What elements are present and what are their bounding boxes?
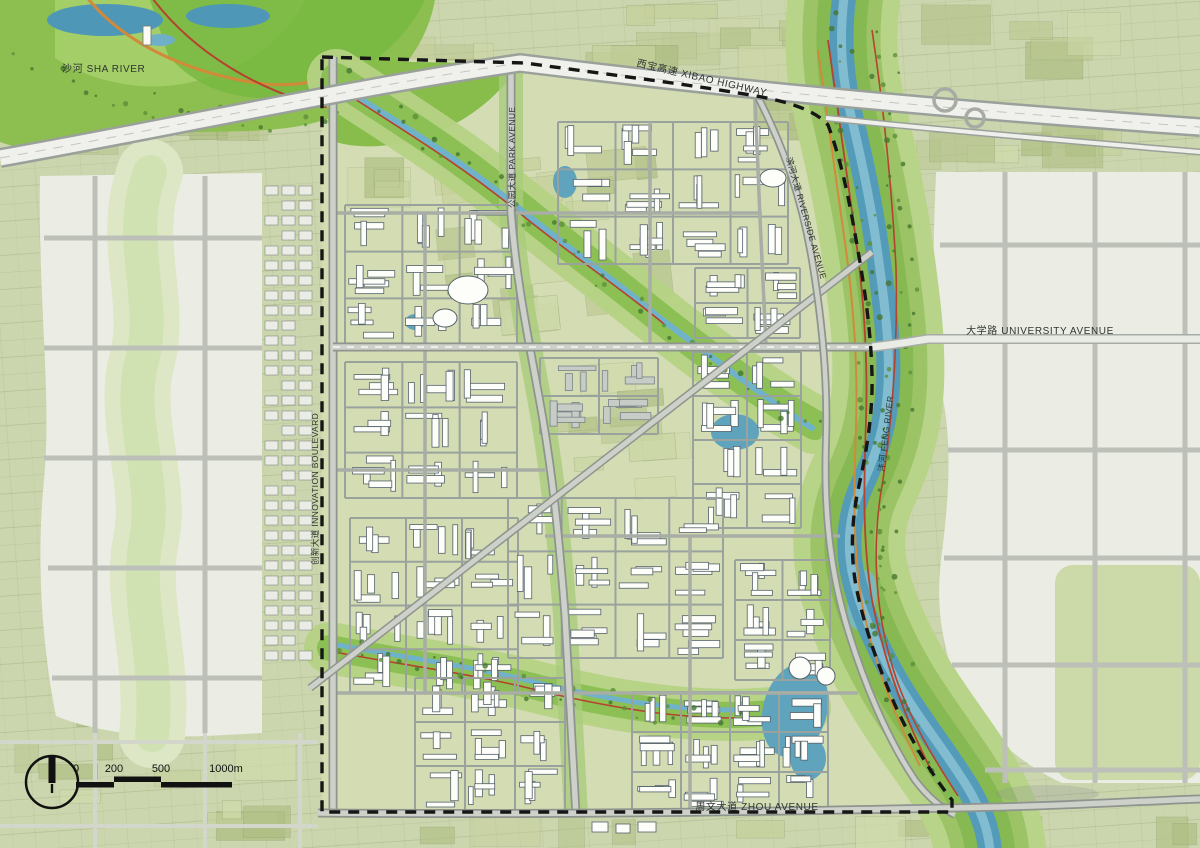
village-building <box>282 576 295 585</box>
village-building <box>265 306 278 315</box>
tree-dot <box>888 112 891 115</box>
village-building <box>265 456 278 465</box>
village-building <box>299 366 312 375</box>
tree-dot <box>839 60 841 62</box>
building <box>589 580 610 585</box>
village-building <box>282 231 295 240</box>
village-building <box>282 411 295 420</box>
exhibition-hall <box>448 276 488 304</box>
building <box>800 571 806 586</box>
building <box>705 308 737 315</box>
tree-dot <box>838 128 844 134</box>
building <box>361 221 366 245</box>
tree-dot <box>877 577 879 579</box>
tree-dot <box>709 362 712 365</box>
building <box>573 179 601 186</box>
tree-dot <box>819 420 822 423</box>
building <box>471 582 492 587</box>
tree-dot <box>432 137 435 140</box>
sha-lake-2 <box>186 4 270 28</box>
building <box>474 267 514 274</box>
building <box>737 792 769 797</box>
tree-dot <box>72 79 75 82</box>
tree-dot <box>896 403 900 407</box>
building <box>473 304 479 328</box>
tree-dot <box>884 697 889 702</box>
tree-dot <box>153 92 156 95</box>
village-building <box>265 276 278 285</box>
building <box>515 612 540 617</box>
tree-dot <box>898 480 902 484</box>
building <box>475 220 482 244</box>
village-building <box>282 396 295 405</box>
tree-dot <box>901 162 906 167</box>
tree-dot <box>595 284 598 287</box>
building <box>432 419 439 448</box>
tree-dot <box>894 591 897 594</box>
building <box>766 273 797 280</box>
building <box>633 149 657 155</box>
label-sha-river: 沙河 SHA RIVER <box>62 63 145 75</box>
building <box>731 495 737 518</box>
tree-dot <box>304 123 307 126</box>
tree-dot <box>907 224 911 228</box>
building <box>522 637 553 644</box>
scale-seg-1 <box>76 782 114 788</box>
building <box>408 383 414 403</box>
building <box>775 227 781 254</box>
tree-dot <box>910 662 915 667</box>
building <box>499 741 505 758</box>
building <box>744 644 773 650</box>
tree-dot <box>897 71 900 74</box>
tree-dot <box>880 586 883 589</box>
village-building <box>265 291 278 300</box>
building <box>620 413 651 420</box>
village-building <box>299 576 312 585</box>
village-building <box>265 606 278 615</box>
building <box>640 225 647 255</box>
tree-dot <box>559 698 562 701</box>
building <box>433 686 440 712</box>
village-building <box>299 621 312 630</box>
tree-dot <box>439 154 443 158</box>
tree-dot <box>521 674 526 679</box>
tree-dot <box>667 336 671 340</box>
building <box>442 419 448 447</box>
tree-dot <box>268 129 272 133</box>
tree-dot <box>877 314 883 320</box>
park-monument <box>143 26 151 45</box>
building <box>683 629 709 636</box>
building <box>712 702 718 718</box>
building <box>801 619 823 625</box>
building <box>570 221 596 228</box>
building <box>814 704 821 728</box>
tree-dot <box>379 658 383 662</box>
building <box>643 633 666 639</box>
tree-dot <box>881 616 885 620</box>
field-parcel <box>243 806 290 838</box>
building <box>781 411 787 433</box>
building <box>466 395 502 402</box>
tree-dot <box>259 125 263 129</box>
village-building <box>299 351 312 360</box>
building <box>640 736 670 743</box>
tree-dot <box>878 623 881 626</box>
tree-dot <box>421 147 425 151</box>
scale-tick-500: 500 <box>152 763 170 775</box>
master-plan-map: 沙河 SHA RIVER 西宝高速 XIBAO HIGHWAY 公园大道 PAR… <box>0 0 1200 848</box>
out-building-2 <box>616 824 630 833</box>
tree-dot <box>647 696 652 701</box>
tree-dot <box>12 52 15 55</box>
tree-dot <box>901 699 906 704</box>
tree-dot <box>499 174 504 179</box>
tree-dot <box>873 441 877 445</box>
building <box>602 371 607 392</box>
tree-dot <box>573 253 576 256</box>
tree-dot <box>653 721 657 725</box>
tree-dot <box>887 224 892 229</box>
building <box>765 494 792 499</box>
village-building <box>265 321 278 330</box>
building <box>558 404 583 411</box>
village-building <box>299 306 312 315</box>
tree-dot <box>870 270 874 274</box>
village-building <box>265 246 278 255</box>
village-building <box>265 261 278 270</box>
village-building <box>299 186 312 195</box>
north-arrow-pointer <box>49 757 56 783</box>
building <box>548 555 553 574</box>
scale-tick-200: 200 <box>105 763 123 775</box>
building <box>619 583 648 588</box>
tree-dot <box>241 124 244 127</box>
building <box>356 265 363 287</box>
tree-dot <box>874 291 878 295</box>
building <box>758 400 763 428</box>
village-building <box>282 531 295 540</box>
village-building <box>299 396 312 405</box>
tree-dot <box>865 600 869 604</box>
village-building <box>265 591 278 600</box>
building <box>763 358 783 363</box>
building <box>481 305 487 326</box>
building <box>349 279 385 284</box>
building <box>473 461 478 492</box>
building <box>359 389 398 394</box>
tree-dot <box>666 704 670 708</box>
building <box>733 446 740 476</box>
building <box>417 567 424 597</box>
village-building <box>282 606 295 615</box>
tree-dot <box>468 161 472 165</box>
village-building <box>282 561 295 570</box>
building <box>534 731 540 754</box>
tree-dot <box>563 239 568 244</box>
building <box>744 628 775 635</box>
field-parcel <box>15 743 39 773</box>
village-building <box>282 486 295 495</box>
village-building <box>282 471 295 480</box>
building <box>358 303 365 324</box>
tree-dot <box>867 241 872 246</box>
building <box>777 284 795 290</box>
tree-dot <box>908 370 912 374</box>
tree-dot <box>882 481 886 485</box>
building <box>787 631 805 637</box>
building <box>706 318 742 324</box>
village-building <box>282 216 295 225</box>
building <box>744 652 772 657</box>
tree-dot <box>893 53 897 57</box>
building <box>355 223 384 229</box>
village-building <box>265 516 278 525</box>
field-parcel <box>1067 12 1120 55</box>
tree-dot <box>912 312 915 315</box>
building <box>491 579 513 585</box>
village-building <box>282 456 295 465</box>
tree-dot <box>456 152 460 156</box>
watermark-smudge <box>995 785 1099 803</box>
village-building <box>265 546 278 555</box>
building <box>465 218 471 244</box>
tree-dot <box>860 219 863 222</box>
village-building <box>265 651 278 660</box>
tree-dot <box>893 134 898 139</box>
tree-dot <box>412 114 418 120</box>
building <box>728 449 734 476</box>
tree-dot <box>881 637 884 640</box>
out-building-3 <box>638 822 656 832</box>
field-parcel <box>627 5 655 25</box>
building <box>469 787 474 805</box>
tree-dot <box>143 111 147 115</box>
building <box>747 605 753 628</box>
tree-dot <box>844 162 849 167</box>
building <box>502 228 508 248</box>
tree-dot <box>883 589 886 592</box>
tree-dot <box>401 120 405 124</box>
building <box>734 755 763 761</box>
field-parcel <box>645 4 718 18</box>
tree-dot <box>857 361 861 365</box>
building <box>632 516 637 543</box>
building <box>632 125 639 143</box>
building <box>682 616 715 623</box>
building <box>702 426 732 432</box>
building <box>497 616 503 638</box>
building <box>355 288 384 294</box>
building <box>738 229 743 253</box>
tree-dot <box>858 436 862 440</box>
building <box>777 293 796 299</box>
building <box>741 564 764 571</box>
tree-dot <box>747 388 749 390</box>
tree-dot <box>829 26 835 32</box>
tree-dot <box>608 701 612 705</box>
village-building <box>265 366 278 375</box>
building <box>756 448 762 475</box>
tree-dot <box>897 199 901 203</box>
village-building <box>299 276 312 285</box>
tree-dot <box>84 90 89 95</box>
field-parcel <box>922 5 991 45</box>
building <box>441 658 447 680</box>
village-building <box>282 351 295 360</box>
village-building <box>282 501 295 510</box>
building <box>679 528 706 533</box>
building <box>748 717 770 722</box>
village-building <box>282 381 295 390</box>
building <box>783 747 790 767</box>
building <box>695 132 701 157</box>
round-tank-1 <box>789 657 811 679</box>
building <box>429 610 452 617</box>
building <box>654 189 659 212</box>
west-greenway-core <box>137 172 153 735</box>
building <box>467 383 505 389</box>
tree-dot <box>433 656 436 659</box>
building <box>521 736 544 743</box>
building <box>558 366 596 371</box>
building <box>688 640 719 647</box>
tree-dot <box>875 30 878 33</box>
tree-dot <box>521 224 525 228</box>
building <box>735 275 741 288</box>
tree-dot <box>894 530 898 534</box>
building <box>571 630 594 637</box>
building <box>557 417 585 422</box>
village-building <box>265 216 278 225</box>
village-building <box>265 501 278 510</box>
building <box>637 614 643 651</box>
tree-dot <box>739 711 743 715</box>
village-building <box>265 186 278 195</box>
village-building <box>299 591 312 600</box>
tree-dot <box>671 716 675 720</box>
building <box>565 374 572 391</box>
tree-dot <box>718 720 724 726</box>
building <box>739 777 771 783</box>
tree-dot <box>346 68 352 74</box>
tree-dot <box>879 565 882 568</box>
tree-dot <box>906 707 910 711</box>
village-building <box>282 516 295 525</box>
building <box>568 508 600 514</box>
building <box>366 456 393 463</box>
building <box>738 705 759 711</box>
village-building <box>299 261 312 270</box>
building <box>369 481 392 488</box>
building <box>738 157 758 162</box>
tree-dot <box>777 400 781 404</box>
tree-dot <box>872 631 878 637</box>
tree-dot <box>892 250 895 253</box>
tree-dot <box>361 654 364 657</box>
tree-dot <box>866 301 871 306</box>
tree-dot <box>778 416 783 421</box>
tree-dot <box>112 104 115 107</box>
tree-dot <box>874 214 877 217</box>
village-building <box>265 396 278 405</box>
tree-dot <box>638 309 643 314</box>
tree-dot <box>886 280 892 286</box>
building <box>771 381 794 387</box>
field-parcel <box>634 476 676 499</box>
tree-dot <box>915 287 919 291</box>
scale-seg-2 <box>114 777 161 783</box>
building <box>438 527 445 554</box>
village-building <box>299 651 312 660</box>
village-building <box>299 381 312 390</box>
building <box>366 527 372 551</box>
building <box>581 372 586 391</box>
tree-dot <box>524 697 529 702</box>
field-parcel <box>235 742 296 780</box>
village-building <box>299 231 312 240</box>
village-building <box>282 366 295 375</box>
tree-dot <box>878 488 881 491</box>
tree-dot <box>870 623 873 626</box>
village-building <box>282 426 295 435</box>
tree-dot <box>399 105 403 109</box>
building <box>405 318 434 325</box>
tree-dot <box>397 659 402 664</box>
village-building <box>265 621 278 630</box>
tree-dot <box>856 186 859 189</box>
map-canvas: 沙河 SHA RIVER 西宝高速 XIBAO HIGHWAY 公园大道 PAR… <box>0 0 1200 848</box>
building <box>751 590 772 595</box>
building <box>475 784 495 789</box>
building <box>451 771 458 801</box>
village-building <box>265 486 278 495</box>
building <box>584 231 591 258</box>
scale-tick-1000: 1000m <box>209 763 243 775</box>
tree-dot <box>483 669 486 672</box>
building <box>545 684 552 709</box>
out-building-1 <box>592 822 608 832</box>
scale-tick-0: 0 <box>73 763 79 775</box>
building <box>368 271 395 278</box>
building <box>567 609 601 615</box>
tree-dot <box>482 663 487 668</box>
tree-dot <box>95 94 98 97</box>
building <box>423 754 456 759</box>
building <box>675 624 712 630</box>
tree-dot <box>878 508 881 511</box>
building <box>524 567 531 599</box>
field-parcel <box>420 827 454 844</box>
tree-dot <box>898 206 903 211</box>
field-parcel <box>222 800 241 819</box>
tree-dot <box>152 116 155 119</box>
village-building <box>265 351 278 360</box>
tree-dot <box>877 55 881 59</box>
building <box>453 525 458 555</box>
building <box>761 404 791 410</box>
tree-dot <box>30 67 33 70</box>
tree-dot <box>833 10 838 15</box>
building <box>529 769 558 774</box>
tree-dot <box>888 175 891 178</box>
building <box>768 224 775 253</box>
building <box>640 744 674 751</box>
village-building <box>265 561 278 570</box>
tree-dot <box>917 724 920 727</box>
tree-dot <box>900 291 903 294</box>
